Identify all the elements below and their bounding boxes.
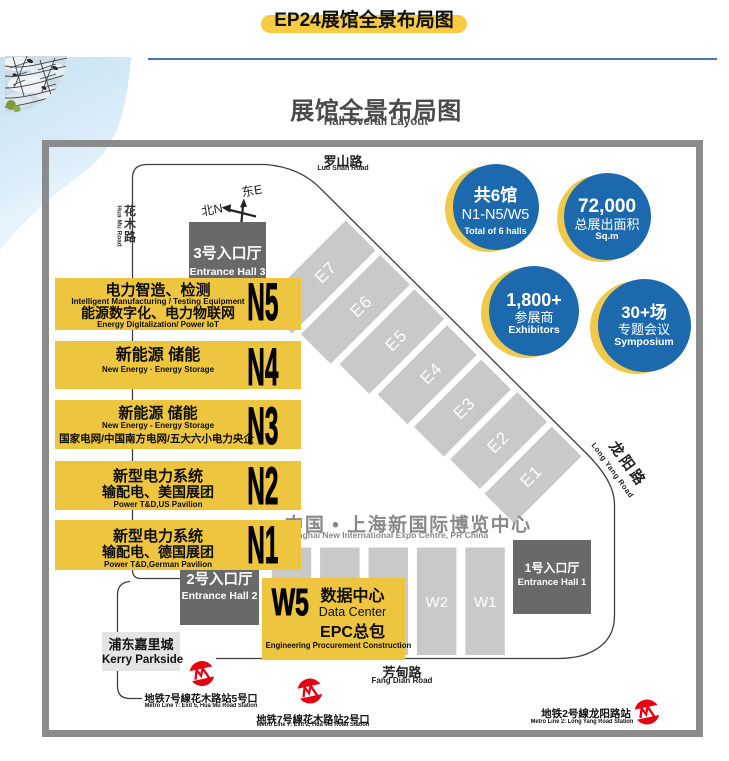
svg-text:Hua Mu Road: Hua Mu Road [116,205,123,247]
svg-text:花木路: 花木路 [123,203,137,244]
svg-text:W2: W2 [426,594,449,611]
svg-text:W1: W1 [474,594,497,611]
svg-text:北N: 北N [200,201,224,219]
svg-text:东E: 东E [241,182,264,199]
